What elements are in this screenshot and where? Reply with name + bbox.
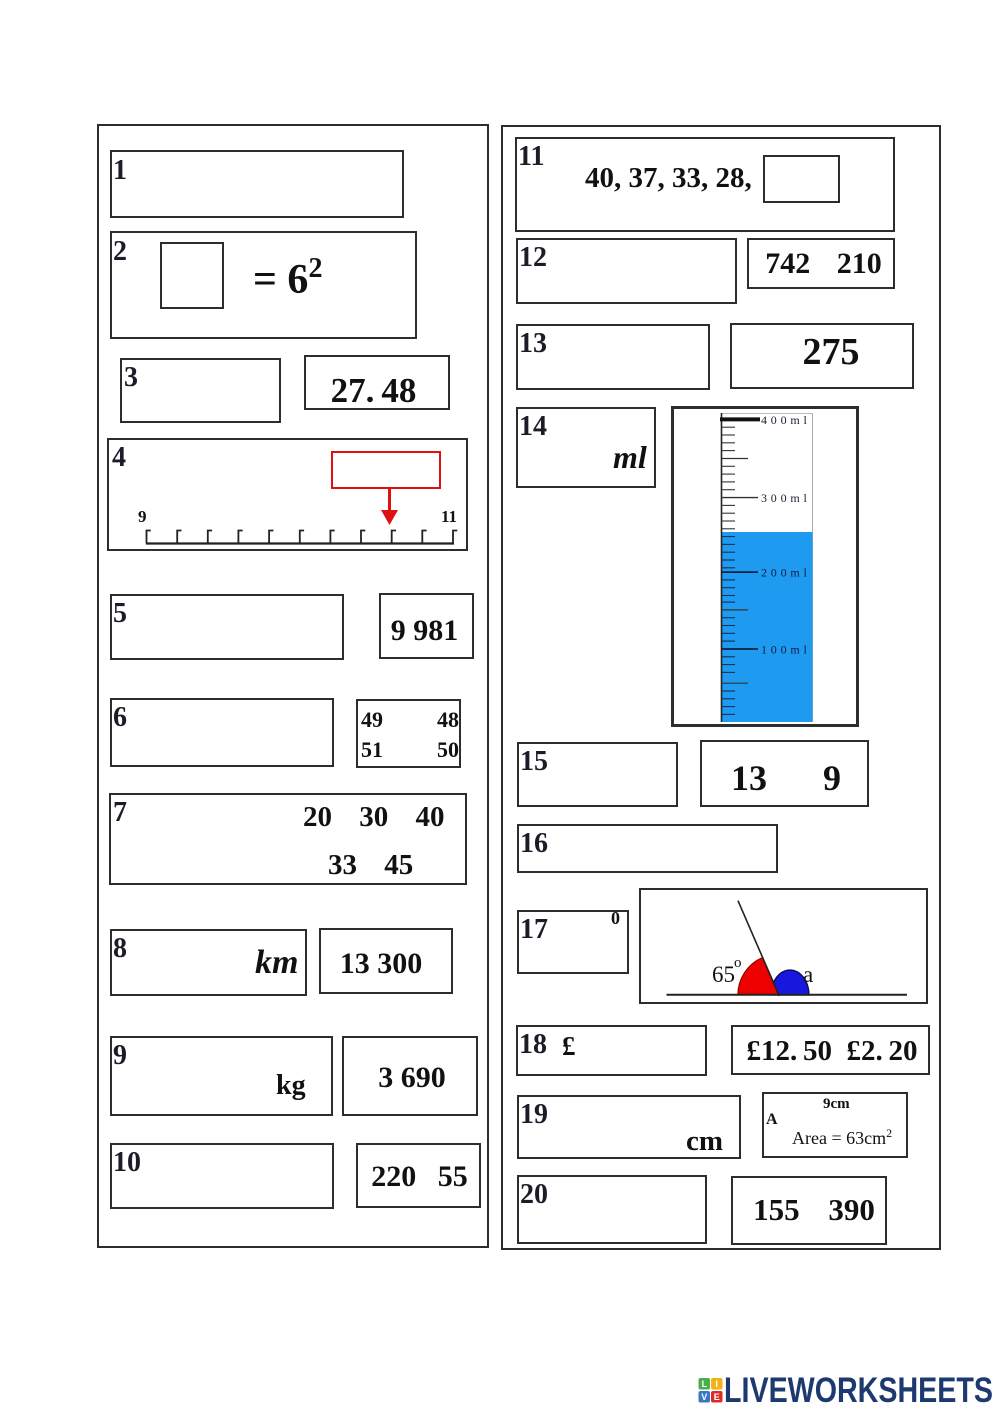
svg-text:3 0 0 m l: 3 0 0 m l: [761, 491, 808, 505]
svg-text:L: L: [702, 1379, 708, 1389]
svg-text:LIVEWORKSHEETS: LIVEWORKSHEETS: [724, 1375, 993, 1407]
svg-text:E: E: [714, 1392, 720, 1402]
svg-text:I: I: [715, 1379, 718, 1389]
svg-text:o: o: [734, 955, 742, 971]
svg-text:a: a: [803, 962, 813, 987]
svg-text:2 0 0 m l: 2 0 0 m l: [761, 566, 808, 580]
svg-text:65: 65: [712, 962, 735, 987]
svg-text:1 0 0 m l: 1 0 0 m l: [761, 642, 808, 656]
svg-text:V: V: [701, 1392, 707, 1402]
svg-text:4 0 0 m l: 4 0 0 m l: [761, 413, 808, 427]
